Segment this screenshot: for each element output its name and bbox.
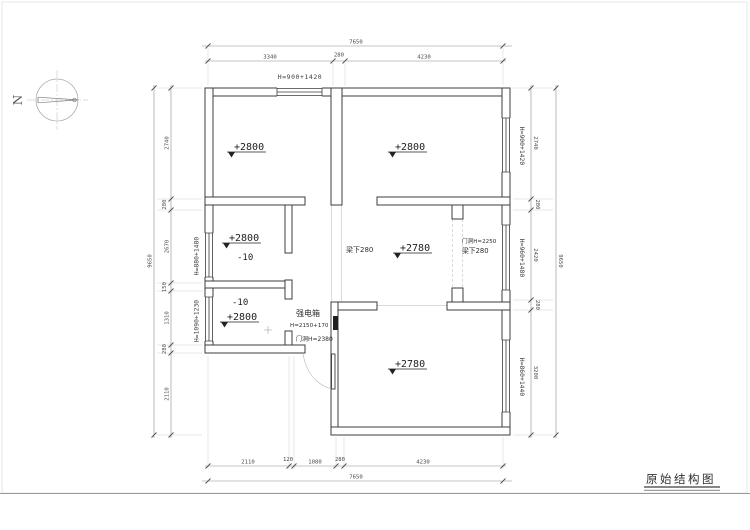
- dim-left-seg-6: 2110: [165, 387, 171, 400]
- cross-marker-icon: [264, 326, 272, 334]
- svg-text:+2800: +2800: [227, 312, 257, 323]
- wall-corridor-jamb-s: [452, 288, 463, 302]
- level-room-topright: +2800: [388, 142, 427, 158]
- sub-level-lowleft: -10: [232, 298, 248, 308]
- dim-right-total: 9650: [557, 254, 563, 267]
- svg-text:+2780: +2780: [400, 243, 430, 254]
- dim-right-seg-4: 3200: [532, 366, 538, 379]
- wall-top: [205, 88, 510, 96]
- wall-room5-south: [331, 427, 510, 435]
- electric-box-symbol: [333, 316, 338, 330]
- dim-left-total: 9650: [148, 254, 154, 267]
- window-left-bottom: [204, 297, 214, 341]
- wall-room3-room4: [205, 281, 292, 288]
- door-leaf: [332, 354, 336, 389]
- window-label-left-bottom: H=1090+1230: [193, 300, 201, 342]
- dim-right-seg-0: 2740: [532, 136, 538, 149]
- dim-bottom-seg-1: 120: [283, 457, 293, 463]
- electric-box-height-label: H=2150+170: [290, 323, 329, 329]
- window-right-middle: [501, 225, 511, 290]
- dim-bottom-total: 7650: [349, 475, 362, 481]
- level-room-midleft: +2800 -10: [222, 233, 261, 263]
- entry-door-height-label: 门洞H=2380: [296, 335, 333, 343]
- electric-box-label: 强电箱: [296, 308, 320, 318]
- svg-text:+2800: +2800: [395, 142, 425, 153]
- level-room-lowleft: -10 +2800: [220, 298, 259, 328]
- wall-room3-east: [285, 205, 292, 253]
- dim-top-seg-2: 4230: [417, 55, 430, 61]
- sheet-border: [0, 2, 750, 494]
- dim-left-seg-0: 2740: [165, 136, 171, 149]
- beam-label-hall: 梁下280: [346, 245, 373, 254]
- dim-bottom-seg-3: 280: [335, 457, 345, 463]
- level-hall: +2780: [393, 243, 432, 259]
- dim-left-seg-5: 280: [162, 344, 168, 354]
- dim-top-seg-1: 280: [334, 53, 344, 59]
- wall-room2-south: [377, 197, 510, 205]
- dim-right-seg-2: 2420: [532, 248, 538, 261]
- title-block: 原始结构图: [644, 472, 720, 490]
- dim-bottom-seg-4: 4230: [416, 460, 429, 466]
- dim-bottom-seg-2: 1080: [308, 460, 321, 466]
- window-label-top: H=900+1420: [278, 73, 322, 81]
- sub-level-midleft: -10: [237, 253, 253, 263]
- window-right-bottom: [501, 340, 511, 412]
- wall-bottom-west: [205, 345, 305, 353]
- dim-left-seg-2: 2670: [165, 240, 171, 253]
- window-label-right-middle: H=960+1480: [518, 239, 526, 278]
- dim-top-total: 7650: [349, 40, 362, 46]
- window-label-right-bottom: H=860+1440: [518, 358, 526, 397]
- svg-text:+2800: +2800: [234, 142, 264, 153]
- wall-room1-south: [205, 197, 305, 205]
- window-label-right-top: H=900+1420: [518, 127, 526, 166]
- level-room-topleft: +2800: [227, 142, 266, 158]
- dim-right-seg-1: 280: [534, 199, 540, 209]
- wall-room5-north-e: [447, 302, 510, 310]
- dim-top-seg-0: 3340: [263, 55, 276, 61]
- wall-room34-east: [285, 280, 292, 299]
- svg-text:+2800: +2800: [229, 233, 259, 244]
- window-right-top: [501, 118, 511, 172]
- level-room-bottomright: +2780: [388, 359, 427, 375]
- window-label-left-middle: H=880+1480: [193, 237, 201, 276]
- drawing-title: 原始结构图: [646, 472, 716, 486]
- drawing-sheet: N: [0, 0, 750, 530]
- window-left-middle: [204, 233, 214, 277]
- entry-door: [303, 354, 335, 389]
- compass-north-label: N: [11, 95, 25, 106]
- extension-lines: [157, 48, 553, 469]
- dim-left-seg-1: 280: [162, 199, 168, 209]
- svg-text:+2780: +2780: [395, 359, 425, 370]
- north-compass: N: [11, 70, 88, 130]
- wall-divider: [331, 88, 342, 205]
- dim-right-seg-3: 280: [534, 300, 540, 310]
- dim-left-seg-3: 150: [162, 282, 168, 292]
- corridor-door-label: 门洞H=2250: [462, 237, 497, 245]
- dim-bottom-seg-0: 2110: [241, 460, 254, 466]
- door-swing-arc: [303, 354, 332, 389]
- window-top: [277, 87, 322, 97]
- wall-corridor-jamb-n: [452, 205, 463, 219]
- beam-label-corridor: 梁下280: [462, 246, 489, 255]
- floor-plan-canvas: N: [0, 0, 750, 530]
- dim-left-seg-4: 1310: [165, 311, 171, 324]
